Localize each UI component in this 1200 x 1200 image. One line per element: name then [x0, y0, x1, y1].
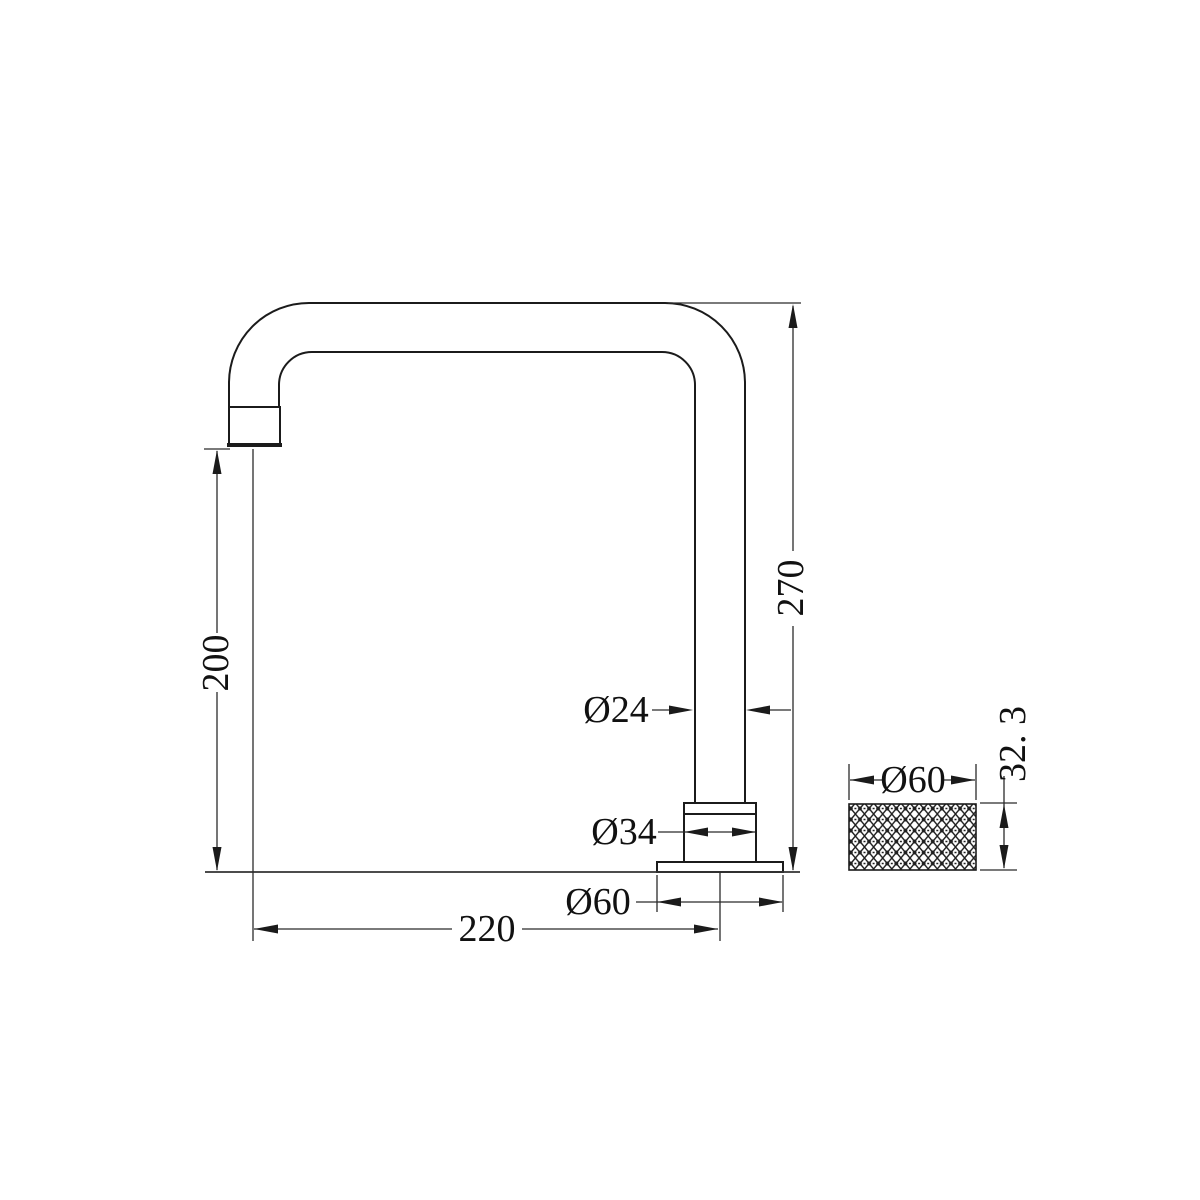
- arrow-32-3-down: [1000, 845, 1009, 869]
- arrow-dia60-base-left: [657, 898, 681, 907]
- spout-inner-contour: [279, 352, 695, 803]
- technical-drawing-page: 200 270 220 Ø24 Ø34 Ø60 Ø60 32. 3: [0, 0, 1200, 1200]
- dim-label-dia34: Ø34: [591, 811, 656, 853]
- arrow-dia60-knob-left: [850, 776, 874, 785]
- dim-label-270: 270: [770, 560, 812, 617]
- arrow-270-down: [789, 847, 798, 871]
- arrow-dia24-left-wall: [669, 706, 693, 715]
- arrow-32-3-up: [1000, 804, 1009, 828]
- dim-label-dia60-knob: Ø60: [880, 759, 945, 801]
- dim-label-220: 220: [459, 908, 516, 950]
- base-flange: [657, 862, 783, 872]
- arrow-dia24-right-wall: [746, 706, 770, 715]
- arrow-220-right: [694, 925, 718, 934]
- arrow-270-up: [789, 304, 798, 328]
- spout-tip-aerator: [229, 407, 280, 445]
- dim-label-200: 200: [195, 635, 237, 692]
- dim-label-dia24: Ø24: [583, 689, 648, 731]
- arrow-dia60-knob-right: [951, 776, 975, 785]
- arrow-200-up: [213, 450, 222, 474]
- arrow-dia60-base-right: [759, 898, 783, 907]
- spout-side-view: [205, 303, 800, 872]
- dimension-labels: 200 270 220 Ø24 Ø34 Ø60 Ø60 32. 3: [195, 560, 1034, 951]
- dim-label-32-3: 32. 3: [992, 706, 1034, 782]
- dim-label-dia60-base: Ø60: [565, 881, 630, 923]
- faucet-technical-drawing: 200 270 220 Ø24 Ø34 Ø60 Ø60 32. 3: [0, 0, 1200, 1200]
- arrow-200-down: [213, 847, 222, 871]
- arrow-220-left: [254, 925, 278, 934]
- knurled-handle: [849, 804, 976, 870]
- arrow-dia34-right: [732, 828, 756, 837]
- arrow-dia34-left: [684, 828, 708, 837]
- handle-detail-view: [849, 804, 976, 870]
- spout-outer-contour: [229, 303, 745, 803]
